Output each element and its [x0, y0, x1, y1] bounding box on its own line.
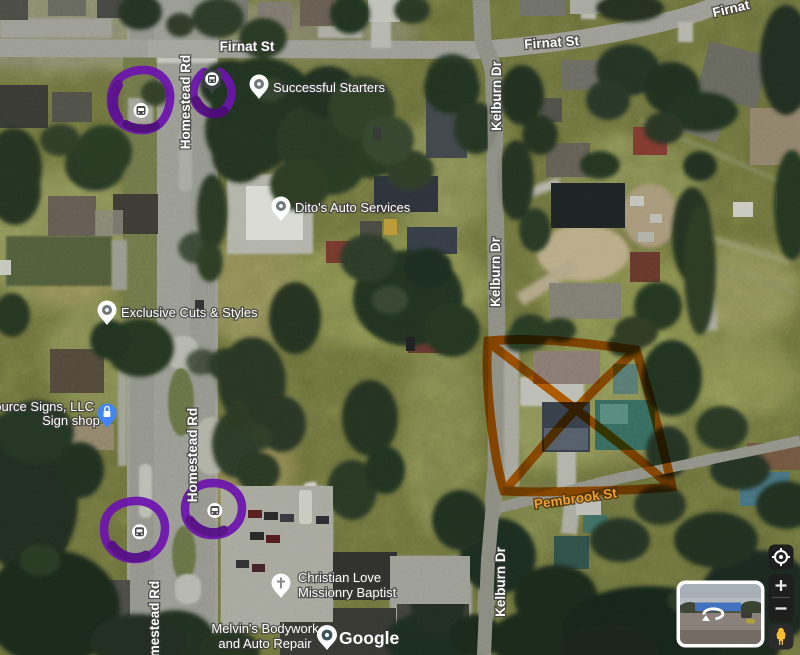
svg-text:Dito's Auto Services: Dito's Auto Services: [295, 200, 411, 215]
svg-text:Source Signs, LLC: Source Signs, LLC: [0, 399, 94, 414]
svg-text:Google: Google: [339, 628, 400, 648]
svg-text:Christian Love: Christian Love: [298, 570, 381, 585]
svg-text:Kelburn Dr: Kelburn Dr: [489, 60, 504, 131]
svg-text:Exclusive Cuts & Styles: Exclusive Cuts & Styles: [121, 305, 258, 320]
svg-text:Homestead Rd: Homestead Rd: [185, 408, 200, 503]
svg-text:Kelburn Dr: Kelburn Dr: [488, 236, 503, 307]
svg-text:Kelburn Dr: Kelburn Dr: [493, 546, 508, 617]
svg-text:Firnat St: Firnat St: [220, 39, 275, 54]
svg-text:Melvin's Bodywork: Melvin's Bodywork: [211, 621, 319, 636]
svg-text:Missionry Baptist: Missionry Baptist: [298, 585, 397, 600]
svg-text:and Auto Repair: and Auto Repair: [218, 636, 312, 651]
svg-text:Successful Starters: Successful Starters: [273, 80, 385, 95]
svg-text:Homestead Rd: Homestead Rd: [147, 581, 162, 655]
svg-text:Sign shop: Sign shop: [42, 413, 100, 428]
svg-text:Homestead Rd: Homestead Rd: [178, 55, 193, 150]
